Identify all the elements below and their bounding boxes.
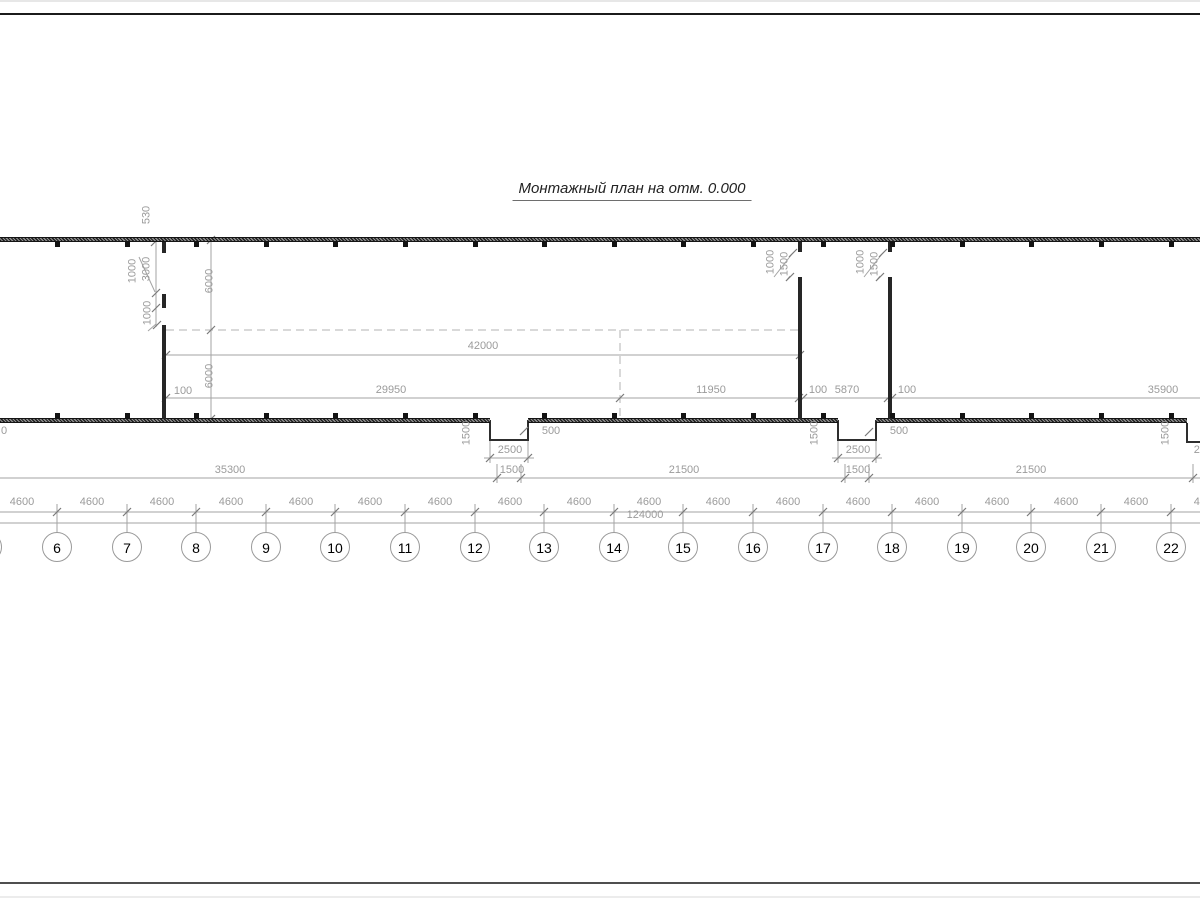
vertical-dimension-label: 1500	[870, 252, 881, 276]
drawing-linework	[0, 0, 1200, 900]
dimension-label: 21500	[669, 465, 700, 476]
drawing-canvas: Монтажный план на отм. 0.000 42000100299…	[0, 0, 1200, 900]
wall-segment	[528, 418, 838, 423]
vertical-dimension-label: 1000	[766, 250, 777, 274]
dimension-label: 500	[890, 426, 908, 437]
total-dimension-label: 124000	[627, 510, 664, 521]
wall-segment	[888, 277, 892, 419]
dimension-label: 100	[809, 385, 827, 396]
column-mark	[264, 242, 269, 247]
column-mark	[55, 242, 60, 247]
bay-width-label: 4600	[567, 497, 591, 508]
dimension-label: 29950	[376, 385, 407, 396]
axis-bubble-label: 16	[745, 541, 761, 555]
axis-bubble-label: 9	[262, 541, 270, 555]
vertical-dimension-label: 1000	[128, 259, 139, 283]
wall-segment	[0, 418, 490, 423]
bay-width-label: 4600	[1054, 497, 1078, 508]
column-mark	[333, 413, 338, 418]
column-mark	[681, 242, 686, 247]
dimension-label: 2500	[846, 445, 870, 456]
wall-segment	[0, 237, 1200, 242]
column-mark	[1099, 242, 1104, 247]
bay-width-label: 4600	[219, 497, 243, 508]
column-mark	[612, 413, 617, 418]
dimension-label: 500	[542, 426, 560, 437]
dimension-label: 5870	[835, 385, 859, 396]
column-mark	[1169, 242, 1174, 247]
dimension-label: 0	[1, 426, 7, 437]
column-mark	[473, 413, 478, 418]
drawing-title: Монтажный план на отм. 0.000	[513, 180, 752, 201]
tick-mark	[865, 428, 873, 436]
bay-width-label: 4600	[10, 497, 34, 508]
dimension-label: 1500	[500, 465, 524, 476]
column-mark	[403, 242, 408, 247]
column-mark	[1169, 413, 1174, 418]
bay-width-label: 4600	[706, 497, 730, 508]
column-mark	[125, 413, 130, 418]
column-mark	[821, 413, 826, 418]
axis-bubble-label: 6	[53, 541, 61, 555]
column-mark	[125, 242, 130, 247]
axis-bubble-label: 7	[123, 541, 131, 555]
bay-width-label: 4600	[915, 497, 939, 508]
bay-width-label: 4600	[1124, 497, 1148, 508]
vertical-dimension-label: 530	[142, 206, 153, 224]
wall-segment	[162, 294, 166, 308]
axis-bubble-label: 12	[467, 541, 483, 555]
column-mark	[473, 242, 478, 247]
column-mark	[542, 242, 547, 247]
bay-width-label: 4600	[776, 497, 800, 508]
axis-bubble-label: 11	[398, 541, 413, 555]
vertical-dimension-label: 1000	[143, 301, 154, 325]
axis-bubble-label: 21	[1093, 541, 1109, 555]
column-mark	[681, 413, 686, 418]
column-mark	[751, 413, 756, 418]
column-mark	[751, 242, 756, 247]
axis-bubble-label: 8	[192, 541, 200, 555]
column-mark	[890, 242, 895, 247]
vertical-dimension-label: 1500	[780, 252, 791, 276]
axis-bubble	[0, 533, 2, 562]
dimension-label: 100	[898, 385, 916, 396]
vertical-dimension-label: 1000	[856, 250, 867, 274]
axis-bubble-label: 10	[327, 541, 343, 555]
vertical-dimension-label: 6000	[205, 269, 216, 293]
axis-bubble-label: 14	[606, 541, 622, 555]
dimension-label: 21500	[1016, 465, 1047, 476]
bay-width-label: 4600	[358, 497, 382, 508]
axis-bubble-label: 20	[1023, 541, 1039, 555]
bay-width-label: 4600	[80, 497, 104, 508]
dimension-label: 100	[174, 386, 192, 397]
wall-segment	[798, 242, 802, 252]
bay-width-label: 4600	[428, 497, 452, 508]
tick-mark	[520, 427, 528, 435]
wall-segment	[876, 418, 1187, 423]
bay-width-label: 4600	[289, 497, 313, 508]
vertical-dimension-label: 6000	[205, 364, 216, 388]
bay-width-label: 4600	[637, 497, 661, 508]
column-mark	[1029, 242, 1034, 247]
dimension-label: 35300	[215, 465, 246, 476]
bay-width-label: 4600	[498, 497, 522, 508]
column-mark	[960, 242, 965, 247]
wall-segment	[798, 277, 802, 419]
dimension-label: 35900	[1148, 385, 1179, 396]
bay-width-label: 4600	[846, 497, 870, 508]
column-mark	[612, 242, 617, 247]
column-mark	[333, 242, 338, 247]
axis-bubble-label: 15	[675, 541, 691, 555]
bay-width-label: 4600	[985, 497, 1009, 508]
axis-bubble-label: 17	[815, 541, 831, 555]
axis-bubble-label: 19	[954, 541, 970, 555]
column-mark	[890, 413, 895, 418]
bay-width-label: 4600	[150, 497, 174, 508]
vertical-dimension-label: 3000	[142, 257, 153, 281]
column-mark	[1029, 413, 1034, 418]
dimension-label: 2500	[498, 445, 522, 456]
dimension-label: 2500	[1194, 445, 1200, 456]
column-mark	[55, 413, 60, 418]
column-mark	[264, 413, 269, 418]
dimension-label: 42000	[468, 341, 499, 352]
axis-bubble-label: 22	[1163, 541, 1179, 555]
dimension-label: 11950	[696, 385, 726, 396]
column-mark	[960, 413, 965, 418]
column-mark	[194, 413, 199, 418]
dimension-label: 1500	[846, 465, 870, 476]
wall-segment	[162, 325, 166, 419]
column-mark	[1099, 413, 1104, 418]
vertical-dimension-label: 1500	[462, 421, 473, 445]
vertical-dimension-label: 1500	[1161, 421, 1172, 445]
axis-bubble-label: 18	[884, 541, 900, 555]
column-mark	[821, 242, 826, 247]
bay-width-label: 4600	[1194, 497, 1200, 508]
wall-segment	[162, 242, 166, 253]
column-mark	[542, 413, 547, 418]
axis-bubble-label: 13	[536, 541, 552, 555]
column-mark	[194, 242, 199, 247]
vertical-dimension-label: 1500	[810, 421, 821, 445]
column-mark	[403, 413, 408, 418]
